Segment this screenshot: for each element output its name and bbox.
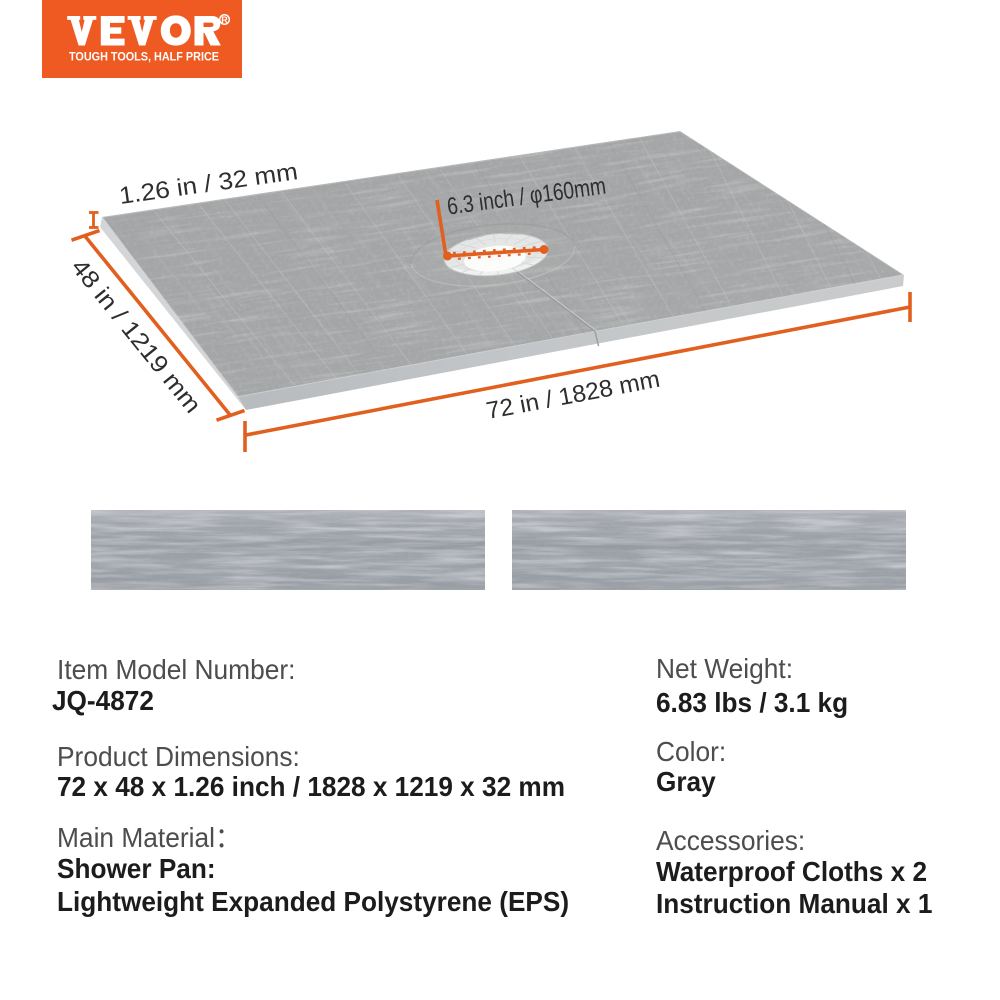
- svg-text:72 in / 1828 mm: 72 in / 1828 mm: [484, 366, 662, 425]
